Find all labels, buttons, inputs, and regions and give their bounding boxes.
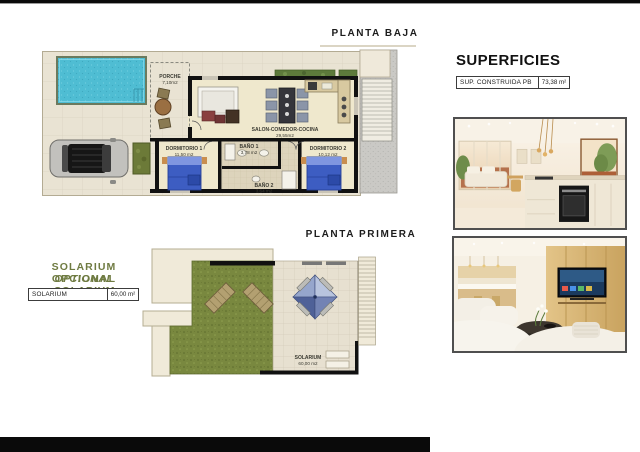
dining-set xyxy=(266,88,308,123)
sink xyxy=(322,83,332,89)
sofa xyxy=(198,87,239,123)
room-area-bano2: 3,64 m2 xyxy=(256,189,273,194)
solarium-row-label: SOLARIUM xyxy=(29,289,107,300)
hob xyxy=(535,177,553,180)
interior-photo-living xyxy=(452,236,627,353)
room-area-dorm1: 11,50 m2 xyxy=(175,152,194,157)
side-terrace xyxy=(360,50,390,77)
room-area-dorm2: 10,12 m2 xyxy=(318,152,338,157)
solarium-table: SOLARIUM 60,00 m² xyxy=(28,288,139,301)
wood-chair xyxy=(511,180,521,192)
roof-strip xyxy=(152,326,170,376)
room-label-bano1: BAÑO 1 xyxy=(240,143,259,150)
bush xyxy=(133,143,150,174)
kitchen-island xyxy=(525,176,625,228)
ground-floor-title: PLANTA BAJA xyxy=(310,28,440,39)
stairs xyxy=(359,257,376,345)
interior-photo-kitchen xyxy=(453,117,627,230)
porche-table xyxy=(155,99,171,115)
room-area-porche: 7,10m2 xyxy=(162,80,178,85)
roof-ledge xyxy=(143,311,195,326)
tv xyxy=(558,268,606,300)
ground-floor-plan: PORCHE 7,10m2 SALON-COMEDOR-COCINA 29,55… xyxy=(42,45,418,197)
coffee-table xyxy=(226,110,239,123)
superficies-row-label: SUP. CONSTRUIDA PB xyxy=(457,77,538,88)
superficies-title: SUPERFICIES xyxy=(456,52,560,69)
soundbar xyxy=(570,298,594,300)
porche-chair xyxy=(158,118,170,129)
exterior-stairs xyxy=(362,79,392,141)
first-floor-plan: SOLARIUM 60,00 m2 xyxy=(140,246,380,406)
porche-chair xyxy=(157,88,170,99)
solarium-row-value: 60,00 m² xyxy=(107,289,138,300)
pool xyxy=(57,57,146,104)
first-floor-title: PLANTA PRIMERA xyxy=(296,229,426,240)
superficies-table: SUP. CONSTRUIDA PB 73,38 m² xyxy=(456,76,570,89)
car xyxy=(50,138,128,184)
bed-dormitorio-2 xyxy=(301,157,347,190)
wood-table xyxy=(507,176,523,179)
brochure-page: PLANTA BAJA xyxy=(0,0,640,452)
bottom-black-bar xyxy=(0,437,430,452)
room-area-bano1: 3,78 m2 xyxy=(241,150,258,155)
bed-dormitorio-1 xyxy=(162,157,207,190)
room-area-salon: 29,55m2 xyxy=(276,133,294,138)
fridge xyxy=(308,82,317,90)
superficies-row-value: 73,38 m² xyxy=(538,77,569,88)
top-black-bar xyxy=(0,0,640,4)
room-area-solarium: 60,00 m2 xyxy=(298,361,318,366)
